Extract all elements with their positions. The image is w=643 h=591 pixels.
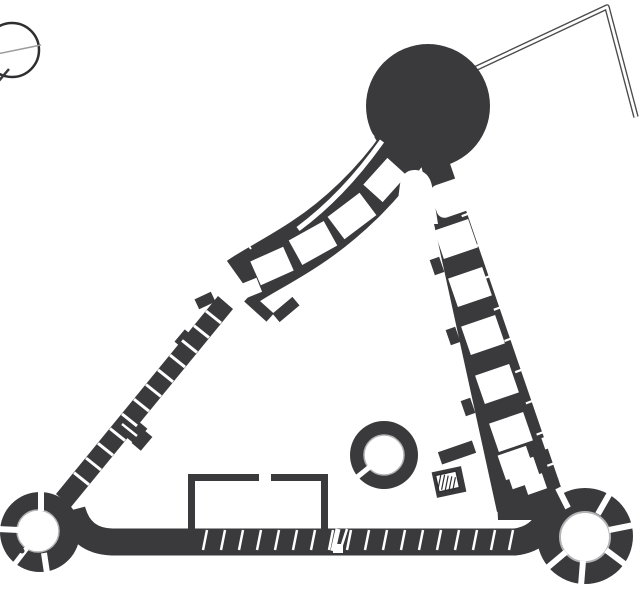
- tower-slit: [581, 561, 583, 586]
- annex-wall-core: [466, 7, 636, 117]
- castle-plan-page: [0, 0, 643, 591]
- range-tick: [325, 180, 330, 186]
- range-tick: [272, 224, 277, 230]
- courtyard-building-wall: [321, 474, 328, 532]
- stair-wall: [438, 440, 476, 464]
- range-tick: [299, 203, 304, 209]
- south-wall: [72, 510, 550, 542]
- compass-cross-line: [0, 45, 41, 57]
- door-jamb: [358, 466, 362, 470]
- tower-slit: [0, 529, 19, 530]
- south-gate-notch: [333, 544, 343, 553]
- range-end-wall-b: [273, 297, 300, 322]
- tower-door-dot: [20, 549, 25, 554]
- castle-floor-plan: [0, 0, 643, 591]
- tower-slit: [44, 553, 47, 573]
- compass-needle: [0, 69, 9, 96]
- range-foot-gap: [456, 505, 492, 516]
- door-jamb: [365, 474, 369, 478]
- courtyard-building-wall: [188, 474, 195, 532]
- courtyard-building-wall: [188, 474, 259, 481]
- range-tick: [348, 155, 353, 161]
- southwest-tower-court: [17, 510, 59, 552]
- courtyard-building-wall: [271, 474, 328, 481]
